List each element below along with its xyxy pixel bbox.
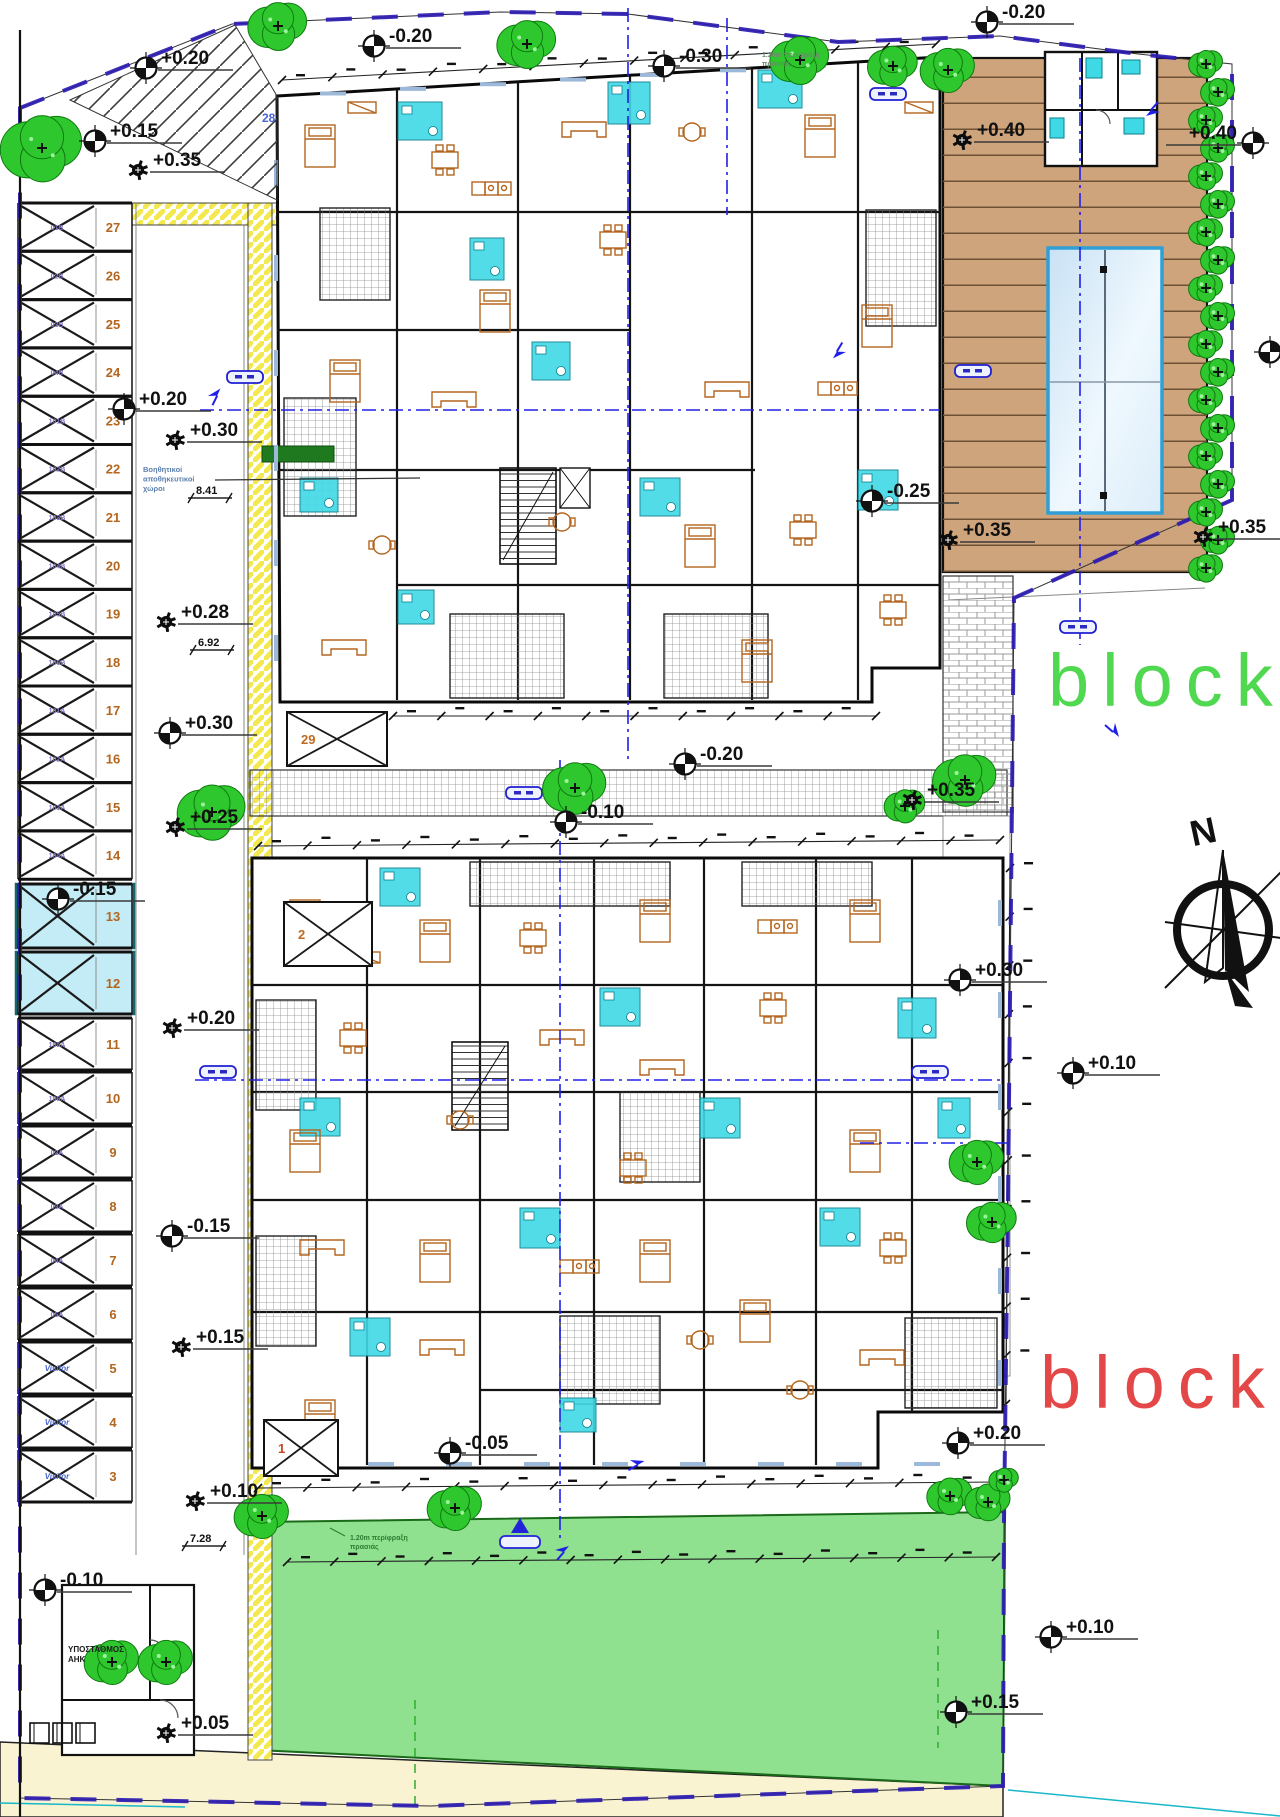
parking-stall: 16102A [18, 734, 132, 782]
stall-number: 19 [106, 607, 120, 622]
stall-number: 9 [109, 1145, 116, 1160]
tree-icon [1201, 303, 1235, 331]
window [680, 1462, 706, 1466]
parking-stall: 902A [18, 1126, 132, 1178]
pool-ladder-icon [1100, 492, 1107, 499]
window [602, 1462, 628, 1466]
stall-number: 27 [106, 220, 120, 235]
tree-icon [1189, 331, 1223, 359]
elevation-value: +0.15 [196, 1327, 245, 1348]
elevation-value: -0.15 [187, 1216, 231, 1237]
window [400, 87, 426, 91]
dimension-text: 6.92 [198, 637, 219, 649]
stall-number: 26 [106, 268, 120, 283]
parking-stall: 605A [18, 1288, 132, 1340]
block-b-label: block [1040, 1341, 1278, 1424]
balcony [620, 1092, 700, 1182]
tree-icon [1201, 359, 1235, 387]
stall-number: 12 [106, 976, 120, 991]
tree-icon [1189, 219, 1223, 247]
parking-stall: 803A [18, 1180, 132, 1232]
note-line: 1.20m περίφραξη [762, 52, 820, 59]
stall-number: 11 [106, 1037, 120, 1052]
stall-number: 14 [106, 848, 121, 863]
tree-icon [1201, 471, 1235, 499]
stall-code: 103B [49, 515, 66, 522]
elevation-value: -0.30 [679, 46, 722, 67]
window [998, 1084, 1002, 1110]
dimension-chain [258, 840, 1000, 846]
elevation-value: +0.25 [190, 807, 239, 828]
window [914, 1462, 940, 1466]
parking-stall: 20104B [18, 541, 132, 589]
ramp-number: 29 [301, 732, 315, 747]
note-line: πρασιάς [762, 61, 791, 68]
labels-layer: block block N [1040, 639, 1280, 1424]
building-outline [277, 57, 940, 702]
elevation-value: -0.10 [581, 802, 624, 823]
entrance-marker-icon [1060, 621, 1096, 633]
tree-icon [927, 1478, 972, 1515]
note-line: χώροι [143, 484, 165, 493]
elevation-marker: -0.20 [971, 2, 1074, 38]
window [560, 78, 586, 82]
stall-code: 03B [51, 322, 64, 329]
stall-number: 22 [106, 462, 120, 477]
parking-stall: 21103B [18, 493, 132, 541]
tree-icon [1189, 387, 1223, 415]
parking-stall: 14104A [18, 831, 132, 879]
tree-icon [1201, 79, 1235, 107]
parking-stall: 2701B [18, 203, 132, 251]
stall-number: 15 [106, 800, 120, 815]
note-line: αποθηκευτικοί [143, 475, 195, 484]
pool-ladder-icon [1100, 266, 1107, 273]
stall-code: 106B [49, 660, 66, 667]
tree-icon [1201, 191, 1235, 219]
parking-stall: 11105A [18, 1018, 132, 1070]
elevation-value: -0.20 [1002, 2, 1045, 23]
bathroom-fixture-icon [1124, 118, 1144, 134]
tree-icon [1189, 275, 1223, 303]
parking-stall: 4Visitor [18, 1396, 132, 1448]
stall-number: 3 [109, 1469, 116, 1484]
elevation-marker: +0.20 [163, 1008, 259, 1038]
stall-number: 18 [106, 655, 120, 670]
entrance-marker-icon [955, 365, 991, 377]
site-plan-canvas: 28 2701B2602B2503B2404B23101B22102B21103… [0, 0, 1280, 1817]
tree-icon [248, 3, 307, 51]
balcony [560, 1316, 660, 1404]
stall-number: 21 [106, 510, 120, 525]
elevation-value: -0.10 [60, 1570, 103, 1591]
elevation-value: +0.40 [977, 120, 1025, 141]
elevation-value: +0.35 [153, 150, 202, 171]
elevation-value: +0.15 [110, 121, 159, 142]
elevation-marker: +0.28 [157, 602, 253, 632]
elevation-value: +0.30 [975, 960, 1023, 981]
stall-code: 102A [49, 756, 66, 763]
bathroom-fixture-icon [1122, 60, 1140, 74]
stall-code: Visitor [45, 1418, 70, 1427]
elevation-value: +0.35 [927, 780, 976, 801]
stall-code: 104A [49, 853, 66, 860]
stall-number: 25 [106, 317, 120, 332]
elevation-value: +0.10 [1066, 1617, 1114, 1638]
entrance-marker-icon [200, 1066, 236, 1078]
parking-stall: 12 [16, 952, 134, 1014]
elevation-value: -0.20 [700, 744, 743, 765]
window [998, 1268, 1002, 1294]
dimension-chain [258, 1482, 998, 1488]
stall-number: 4 [109, 1415, 117, 1430]
elevation-value: +0.28 [181, 602, 229, 623]
window [998, 1176, 1002, 1202]
window [368, 1462, 394, 1466]
stall-code: 105A [49, 1042, 66, 1049]
balcony [664, 614, 768, 698]
stall-code: 04A [51, 1258, 64, 1265]
window [836, 1462, 862, 1466]
flow-arrow-icon [207, 389, 224, 406]
note-line: 1.20m περίφραξη [350, 1535, 408, 1542]
elevation-marker: +0.30 [154, 713, 257, 749]
stall-number: 17 [106, 703, 120, 718]
elevation-marker [1254, 336, 1280, 368]
window [274, 255, 278, 281]
stall-code: 02A [51, 1150, 64, 1157]
ramp-box: 1 [264, 1420, 338, 1476]
parking-stall: 704A [18, 1234, 132, 1286]
stall-number: 16 [106, 751, 120, 766]
tree-icon [1189, 51, 1223, 79]
entrance-marker-icon [912, 1066, 948, 1078]
balcony [320, 208, 390, 300]
dimension-text: 8.41 [196, 485, 217, 497]
window [274, 540, 278, 566]
window [998, 900, 1002, 926]
parking-stall: 2602B [18, 251, 132, 299]
window [524, 1462, 550, 1466]
stall-code: Visitor [45, 1472, 70, 1481]
stall-number: 24 [106, 365, 121, 380]
elevation-value: +0.35 [963, 520, 1012, 541]
stall-code: 103A [49, 805, 66, 812]
window [998, 992, 1002, 1018]
buildings-layer: 28 [70, 25, 1003, 1468]
entrance-marker-icon [870, 88, 906, 100]
window [274, 350, 278, 376]
stall-code: 102B [49, 467, 66, 474]
bike-rack-icon [30, 1723, 49, 1743]
tree-icon [1189, 555, 1223, 583]
entrance-marker-icon [227, 371, 263, 383]
stall-number: 7 [109, 1253, 116, 1268]
elevation-value: +0.10 [210, 1481, 258, 1502]
window [320, 92, 346, 96]
elevation-value: +0.20 [973, 1423, 1021, 1444]
tree-icon [1201, 415, 1235, 443]
note-line: Βοηθητικοί [143, 465, 182, 474]
stall-number: 13 [106, 909, 120, 924]
balcony [905, 1318, 997, 1408]
bathroom-fixture-icon [1050, 118, 1064, 138]
parking-stall: 3Visitor [18, 1450, 132, 1502]
balcony [450, 614, 564, 698]
window [274, 445, 278, 471]
stall-code: 01B [51, 225, 64, 232]
elevation-value: -0.05 [465, 1433, 509, 1454]
parking-stall: 18106B [18, 638, 132, 686]
elevation-value: +0.20 [161, 48, 209, 69]
elevation-value: +0.05 [181, 1713, 230, 1734]
tree-icon [1201, 247, 1235, 275]
window [758, 1462, 784, 1466]
elevation-value: -0.25 [887, 481, 931, 502]
annotation-note: Βοηθητικοίαποθηκευτικοίχώροι [143, 465, 195, 493]
elevation-marker: +0.20 [942, 1423, 1045, 1459]
benchmark-tag-icon [500, 1536, 540, 1548]
stall-code: 104B [49, 563, 66, 570]
bathroom-fixture-icon [1086, 58, 1102, 78]
stall-number: 6 [109, 1307, 116, 1322]
window [720, 68, 746, 72]
stall-code: 105B [49, 612, 66, 619]
elevation-value: +0.20 [139, 389, 187, 410]
window [480, 82, 506, 86]
elevation-value: +0.35 [1218, 517, 1267, 538]
elevation-value: +0.30 [185, 713, 233, 734]
planter-strip [262, 446, 334, 462]
stall-code: 05A [51, 1312, 64, 1319]
stall-number: 5 [109, 1361, 116, 1376]
parking-stall: 10106A [18, 1072, 132, 1124]
tree-icon [989, 1468, 1018, 1492]
balcony [256, 1000, 316, 1110]
parking-stall: 15103A [18, 783, 132, 831]
tree-icon [0, 116, 81, 182]
elevation-value: +0.30 [190, 420, 238, 441]
stall-code: Visitor [45, 1364, 70, 1373]
site-plan-drawing: 28 2701B2602B2503B2404B23101B22102B21103… [0, 0, 1280, 1817]
stall-number: 20 [106, 558, 120, 573]
note-line: πρασιάς [350, 1544, 379, 1551]
stall-code: 02B [51, 273, 64, 280]
stall-code: 04B [51, 370, 64, 377]
parking-stall: 2404B [18, 348, 132, 396]
ramp-box: 29 [287, 712, 387, 766]
elevation-value: -0.15 [73, 879, 117, 900]
elevation-value: -0.20 [389, 26, 432, 47]
elevation-marker: +0.10 [1057, 1053, 1160, 1089]
stall-code: 03A [51, 1204, 64, 1211]
entrance-marker-icon [506, 787, 542, 799]
road-centerline [1008, 1790, 1280, 1816]
elevation-value: +0.40 [1189, 123, 1237, 144]
ramp-number: 2 [298, 927, 305, 942]
tree-icon [1189, 163, 1223, 191]
elevation-marker: -0.20 [358, 26, 461, 62]
parking-stall: 17101A [18, 686, 132, 734]
stall-number: 10 [106, 1091, 120, 1106]
block-a-label: block [1048, 639, 1280, 722]
tree-icon [1189, 443, 1223, 471]
elevation-marker: +0.10 [1035, 1617, 1138, 1653]
stall-code: 101A [49, 708, 66, 715]
parking-stall: 22102B [18, 445, 132, 493]
compass-rose: N [1165, 809, 1280, 1008]
elevation-value: +0.10 [1088, 1053, 1136, 1074]
ramp-box: 2 [284, 902, 372, 966]
elevation-value: +0.20 [187, 1008, 235, 1029]
window [998, 1360, 1002, 1386]
window [274, 635, 278, 661]
balcony [256, 1236, 316, 1346]
stall-code: 106A [49, 1096, 66, 1103]
stall-28-number: 28 [262, 111, 276, 125]
parking-stall: 5Visitor [18, 1342, 132, 1394]
north-compass-icon: N [1165, 809, 1280, 1008]
parking-stall: 19105B [18, 589, 132, 637]
elevation-value: +0.15 [971, 1692, 1020, 1713]
parking-stall: 2503B [18, 300, 132, 348]
ramp-number: 1 [278, 1441, 285, 1456]
flow-arrow-icon [1105, 723, 1119, 737]
stall-number: 8 [109, 1199, 116, 1214]
compass-needle [1223, 850, 1249, 992]
note-line: ΑΗΚ [68, 1655, 86, 1664]
note-line: ΥΠΟΣΤΑΘΜΟΣ [68, 1645, 124, 1654]
stall-code: 101B [49, 418, 66, 425]
dimension-text: 7.28 [190, 1533, 211, 1545]
tree-icon [497, 21, 556, 69]
compass-n-label: N [1186, 809, 1220, 855]
lawn [257, 1512, 1005, 1786]
